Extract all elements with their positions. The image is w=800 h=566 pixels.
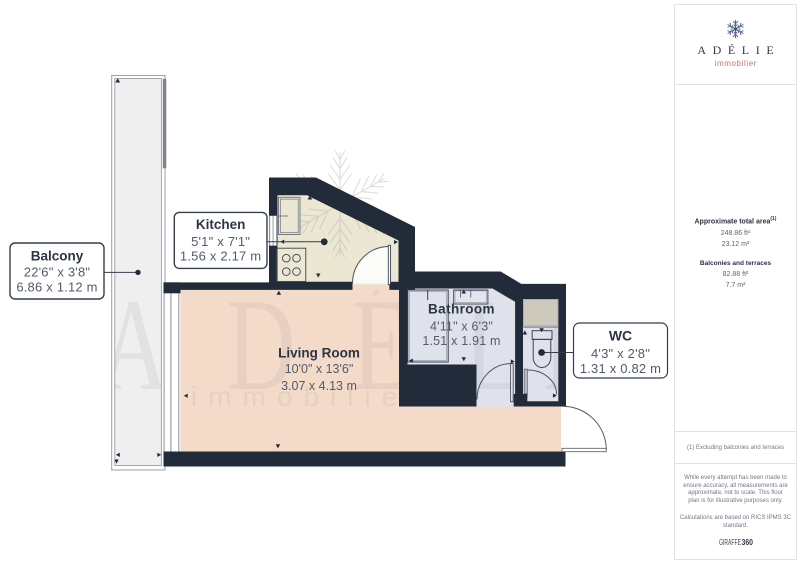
svg-text:4'11" x 6'3": 4'11" x 6'3" bbox=[430, 319, 493, 333]
svg-text:10'0" x 13'6": 10'0" x 13'6" bbox=[285, 362, 354, 376]
svg-text:A: A bbox=[100, 272, 169, 418]
svg-text:6.86 x 1.12 m: 6.86 x 1.12 m bbox=[16, 280, 97, 295]
svg-text:360: 360 bbox=[742, 537, 754, 547]
svg-text:3.07 x 4.13 m: 3.07 x 4.13 m bbox=[281, 379, 357, 393]
svg-text:Bathroom: Bathroom bbox=[428, 302, 495, 317]
svg-text:1.31 x 0.82 m: 1.31 x 0.82 m bbox=[580, 361, 661, 376]
svg-text:5'1" x 7'1": 5'1" x 7'1" bbox=[191, 234, 250, 249]
svg-text:1.56 x 2.17 m: 1.56 x 2.17 m bbox=[180, 248, 261, 263]
svg-text:GIRAFFE: GIRAFFE bbox=[719, 537, 741, 547]
svg-text:4'3" x 2'8": 4'3" x 2'8" bbox=[591, 346, 650, 361]
svg-text:1.51 x 1.91 m: 1.51 x 1.91 m bbox=[422, 334, 500, 348]
svg-text:Balcony: Balcony bbox=[31, 249, 84, 264]
svg-text:WC: WC bbox=[609, 328, 632, 344]
svg-text:Kitchen: Kitchen bbox=[196, 217, 246, 232]
svg-text:Living Room: Living Room bbox=[278, 346, 360, 361]
svg-text:22'6" x 3'8": 22'6" x 3'8" bbox=[24, 265, 91, 280]
